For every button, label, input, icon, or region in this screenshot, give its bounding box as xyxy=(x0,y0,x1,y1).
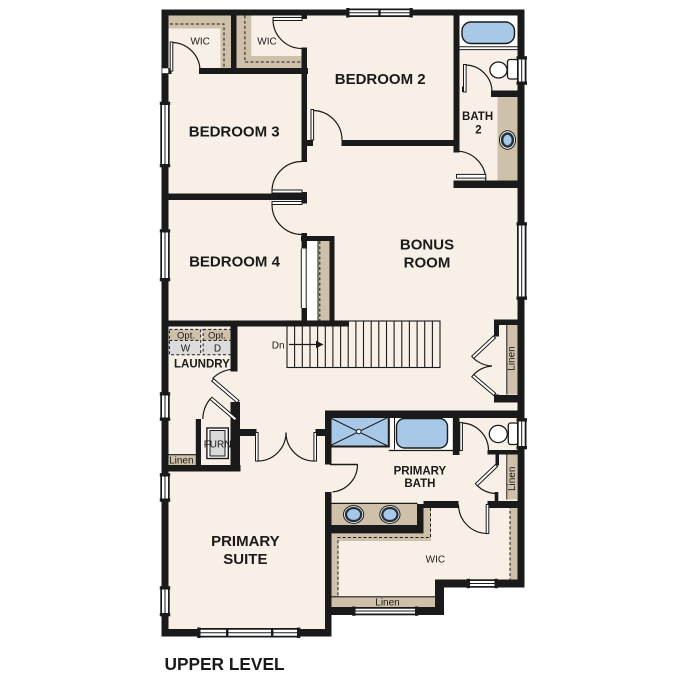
svg-text:D: D xyxy=(214,344,221,355)
svg-text:WIC: WIC xyxy=(257,36,276,47)
svg-text:BATH: BATH xyxy=(404,478,435,490)
svg-text:WIC: WIC xyxy=(190,36,209,47)
svg-text:BEDROOM 2: BEDROOM 2 xyxy=(335,71,426,88)
svg-text:PRIMARY: PRIMARY xyxy=(394,465,447,477)
svg-text:2: 2 xyxy=(475,125,481,137)
svg-text:Dn: Dn xyxy=(272,340,285,351)
svg-text:UPPER LEVEL: UPPER LEVEL xyxy=(165,654,285,674)
svg-text:ROOM: ROOM xyxy=(404,255,451,272)
svg-text:PRIMARY: PRIMARY xyxy=(211,533,280,550)
svg-text:FURN: FURN xyxy=(204,440,232,451)
svg-text:SUITE: SUITE xyxy=(223,551,267,568)
svg-text:LAUNDRY: LAUNDRY xyxy=(174,359,230,371)
svg-text:Linen: Linen xyxy=(375,597,399,608)
svg-text:BEDROOM 4: BEDROOM 4 xyxy=(189,254,281,271)
svg-text:W: W xyxy=(181,344,191,355)
svg-text:Opt.: Opt. xyxy=(208,330,226,341)
svg-text:BATH: BATH xyxy=(462,111,493,123)
svg-text:BEDROOM 3: BEDROOM 3 xyxy=(189,123,280,140)
svg-text:Linen: Linen xyxy=(507,467,518,491)
svg-text:Linen: Linen xyxy=(507,346,518,370)
svg-text:Opt.: Opt. xyxy=(177,330,195,341)
svg-text:WIC: WIC xyxy=(426,555,445,566)
svg-text:BONUS: BONUS xyxy=(400,237,454,254)
svg-text:Linen: Linen xyxy=(169,456,193,467)
